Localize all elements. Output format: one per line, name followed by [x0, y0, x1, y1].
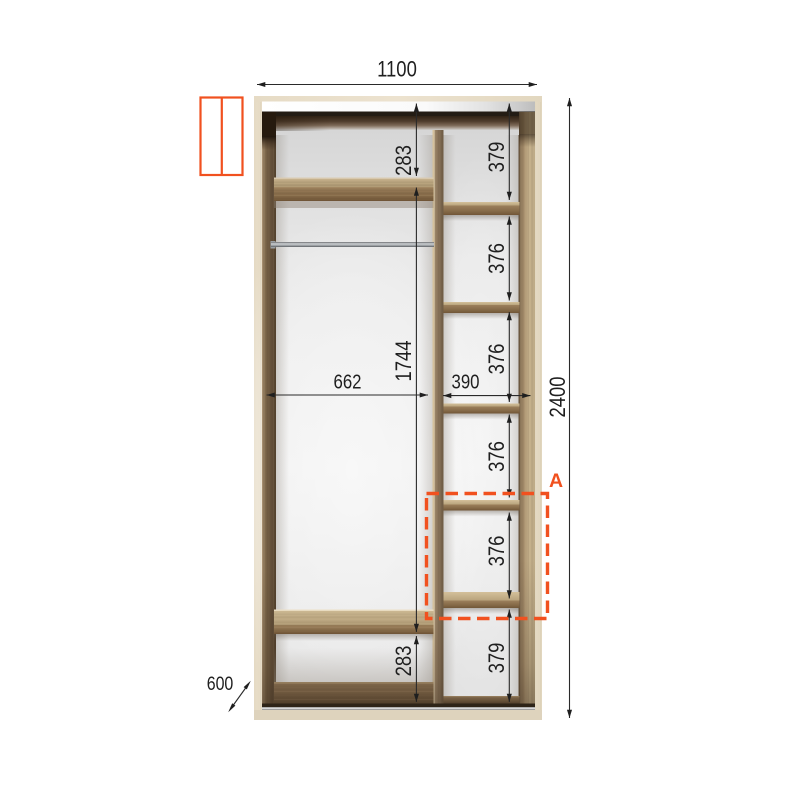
svg-text:376: 376	[486, 344, 510, 375]
svg-text:376: 376	[486, 441, 510, 472]
svg-text:A: A	[549, 470, 563, 492]
svg-text:283: 283	[393, 145, 417, 176]
svg-text:376: 376	[486, 243, 510, 274]
svg-text:379: 379	[486, 643, 510, 674]
svg-text:376: 376	[486, 536, 510, 567]
svg-text:1100: 1100	[377, 58, 417, 82]
svg-text:1744: 1744	[393, 340, 417, 381]
svg-text:662: 662	[333, 370, 361, 393]
svg-text:2400: 2400	[547, 376, 571, 417]
svg-text:390: 390	[451, 370, 479, 393]
svg-text:600: 600	[207, 673, 234, 695]
svg-text:283: 283	[393, 646, 417, 677]
svg-text:379: 379	[486, 142, 510, 173]
